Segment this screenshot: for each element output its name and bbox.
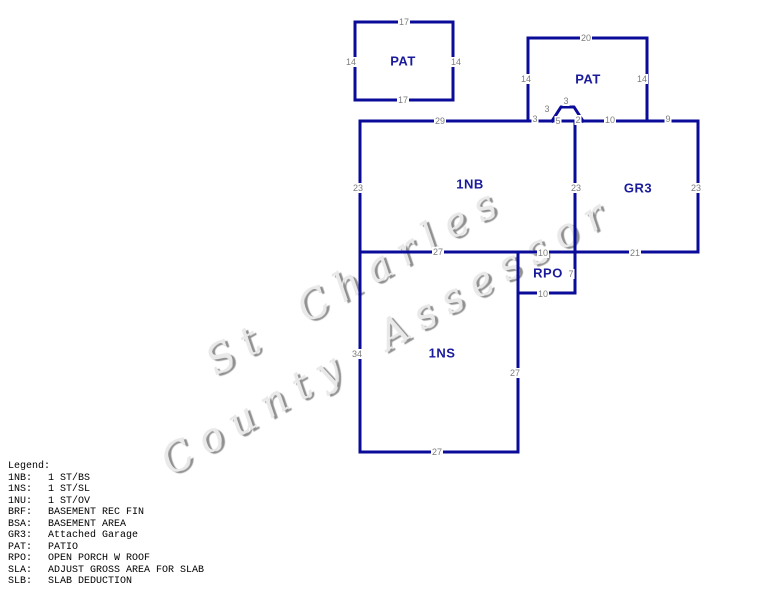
area-label-patio-1: PAT bbox=[390, 54, 416, 69]
legend-desc: 1 ST/SL bbox=[48, 484, 90, 496]
legend-desc: Attached Garage bbox=[48, 530, 138, 542]
legend-desc: ADJUST GROSS AREA FOR SLAB bbox=[48, 565, 204, 577]
legend-title: Legend: bbox=[8, 461, 204, 473]
dim-ns-bottom: 27 bbox=[431, 447, 443, 457]
legend-desc: PATIO bbox=[48, 542, 78, 554]
dim-pat1-left: 14 bbox=[345, 57, 357, 67]
legend-desc: SLAB DEDUCTION bbox=[48, 576, 132, 588]
dim-pat2-bottom-seg2: 10 bbox=[604, 115, 616, 125]
legend-entry-1nu: 1NU: 1 ST/OV bbox=[8, 496, 204, 508]
legend-code: GR3: bbox=[8, 530, 48, 542]
dim-nb-bottom: 27 bbox=[432, 247, 444, 257]
dim-pat2-left: 14 bbox=[520, 74, 532, 84]
legend-desc: 1 ST/BS bbox=[48, 473, 90, 485]
legend-code: 1NU: bbox=[8, 496, 48, 508]
area-label-gr3: GR3 bbox=[624, 181, 652, 196]
dim-pat2-right: 14 bbox=[636, 74, 648, 84]
legend-entry-1ns: 1NS: 1 ST/SL bbox=[8, 484, 204, 496]
dim-bump-top: 3 bbox=[562, 96, 569, 106]
legend-entry-rpo: RPO: OPEN PORCH W ROOF bbox=[8, 553, 204, 565]
legend-desc: 1 ST/OV bbox=[48, 496, 90, 508]
watermark-line-1: St Charles bbox=[116, 123, 595, 437]
legend-entry-gr3: GR3: Attached Garage bbox=[8, 530, 204, 542]
legend: Legend: 1NB: 1 ST/BS 1NS: 1 ST/SL 1NU: 1… bbox=[8, 461, 204, 588]
dim-bump-base: 5 bbox=[554, 116, 561, 126]
dim-nb-gr3-divider: 23 bbox=[570, 183, 582, 193]
dim-nb-left: 23 bbox=[352, 183, 364, 193]
assessor-sketch-page: St Charles County Assessor bbox=[0, 0, 762, 602]
area-label-rpo: RPO bbox=[533, 266, 563, 281]
area-label-1nb: 1NB bbox=[456, 177, 484, 192]
dim-pat1-right: 14 bbox=[450, 57, 462, 67]
watermark: St Charles County Assessor bbox=[116, 123, 627, 492]
legend-code: SLA: bbox=[8, 565, 48, 577]
legend-entry-pat: PAT: PATIO bbox=[8, 542, 204, 554]
legend-code: 1NS: bbox=[8, 484, 48, 496]
legend-code: 1NB: bbox=[8, 473, 48, 485]
legend-code: PAT: bbox=[8, 542, 48, 554]
legend-entry-slb: SLB: SLAB DEDUCTION bbox=[8, 576, 204, 588]
dim-pat2-bottom-seg1: 3 bbox=[531, 114, 538, 124]
dim-rpo-top: 10 bbox=[537, 248, 549, 258]
legend-code: RPO: bbox=[8, 553, 48, 565]
dim-gr3-bottom: 21 bbox=[629, 248, 641, 258]
legend-entry-bsa: BSA: BASEMENT AREA bbox=[8, 519, 204, 531]
dim-bump-left-diagonal: 3 bbox=[543, 104, 550, 114]
dim-pat1-top: 17 bbox=[398, 17, 410, 27]
legend-desc: BASEMENT REC FIN bbox=[48, 507, 144, 519]
legend-code: BRF: bbox=[8, 507, 48, 519]
dim-pat2-top: 20 bbox=[580, 33, 592, 43]
dim-gr3-right: 23 bbox=[690, 183, 702, 193]
dim-bump-right-diagonal: 2 bbox=[574, 115, 581, 125]
dim-rpo-bottom: 10 bbox=[537, 289, 549, 299]
legend-desc: BASEMENT AREA bbox=[48, 519, 126, 531]
dim-rpo-right: 7 bbox=[567, 269, 574, 279]
area-label-1ns: 1NS bbox=[429, 346, 456, 361]
legend-code: SLB: bbox=[8, 576, 48, 588]
dim-ns-right: 27 bbox=[509, 368, 521, 378]
dim-ns-left: 34 bbox=[351, 349, 363, 359]
legend-entry-brf: BRF: BASEMENT REC FIN bbox=[8, 507, 204, 519]
dim-nb-top: 29 bbox=[434, 116, 446, 126]
legend-code: BSA: bbox=[8, 519, 48, 531]
legend-desc: OPEN PORCH W ROOF bbox=[48, 553, 150, 565]
dim-gr3-top: 9 bbox=[664, 114, 671, 124]
watermark-line-2: County Assessor bbox=[148, 179, 627, 493]
dim-pat1-bottom: 17 bbox=[397, 95, 409, 105]
area-label-patio-2: PAT bbox=[575, 72, 601, 87]
legend-entry-1nb: 1NB: 1 ST/BS bbox=[8, 473, 204, 485]
legend-entry-sla: SLA: ADJUST GROSS AREA FOR SLAB bbox=[8, 565, 204, 577]
